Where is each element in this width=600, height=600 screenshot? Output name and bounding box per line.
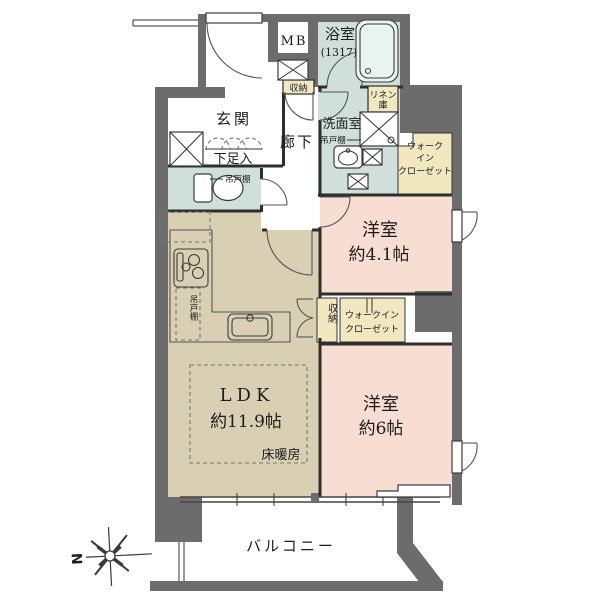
washer-pan-icon xyxy=(360,112,398,146)
bedroom1-window-arc xyxy=(462,212,477,240)
wall-window-mullion xyxy=(311,493,319,503)
room-size-bath: (1317) xyxy=(321,46,358,59)
wall-right-upper xyxy=(400,14,410,93)
compass-icon: N xyxy=(69,525,154,588)
toilet-tank xyxy=(194,174,212,202)
label-linen-2: 庫 xyxy=(378,99,387,111)
washbasin-icon xyxy=(334,146,362,168)
room-size-ldk: 約11.9帖 xyxy=(210,412,282,432)
shoe-cabinet-arc xyxy=(206,138,230,150)
wall-bath-left xyxy=(308,14,318,87)
label-kitchen-cupboard: 吊戸棚 xyxy=(188,295,198,321)
floor-plan-canvas: N MB 浴室 (1317) 玄関 下足入 廊下 収納 洗面室 吊戸棚 リネン … xyxy=(0,0,600,600)
shoe-cabinet-arc xyxy=(222,138,246,150)
balcony-wall-bottom xyxy=(150,581,443,591)
shoe-cabinet-arc xyxy=(238,138,262,150)
compass-ray xyxy=(86,554,152,557)
label-floor-heating: 床暖房 xyxy=(261,447,300,463)
bathtub-icon xyxy=(356,20,398,82)
bathtub-outer xyxy=(356,20,398,82)
balcony-partition xyxy=(179,542,184,581)
room-label-hallway: 廊下 xyxy=(280,133,314,151)
label-wic-mid-1: ウォークイン xyxy=(345,310,399,321)
label-wic-mid-2: クローゼット xyxy=(345,323,399,335)
compass-north-label: N xyxy=(70,552,87,565)
label-wic-right-1: ウォーク xyxy=(407,141,443,152)
room-label-mb: MB xyxy=(281,34,308,49)
label-wic-right-3: クローゼット xyxy=(398,165,452,177)
balcony-wall-right xyxy=(397,497,413,543)
compass-center xyxy=(105,551,116,562)
wall-pillar xyxy=(415,291,452,332)
label-washroom-cupboard: 吊戸棚 xyxy=(320,135,346,146)
railing-lines xyxy=(133,20,198,26)
wall xyxy=(155,87,168,497)
label-hall-storage: 収納 xyxy=(289,82,307,94)
room-size-bedroom1: 約4.1帖 xyxy=(348,245,409,265)
room-label-washroom: 洗面室 xyxy=(322,116,361,132)
room-label-balcony: バルコニー xyxy=(246,537,336,555)
label-toilet-cupboard: 吊戸棚 xyxy=(225,174,251,185)
room-label-ldk: LDK xyxy=(220,385,275,406)
bedroom2-window-arc xyxy=(462,443,477,471)
ldk-floor xyxy=(168,212,261,230)
hall-storage-door-arc xyxy=(285,92,313,120)
label-storage-mid: 収納 xyxy=(326,303,338,324)
entrance-door-leaf xyxy=(206,13,262,23)
label-wic-right-2: イン xyxy=(416,154,434,164)
bedroom2-window-gap xyxy=(452,441,462,473)
balcony-pillar xyxy=(155,497,202,542)
label-shoe-cabinet: 下足入 xyxy=(213,152,252,167)
bedroom1-window-gap xyxy=(452,210,462,242)
room-size-bedroom2: 約6帖 xyxy=(359,419,404,439)
room-label-bath: 浴室 xyxy=(325,25,355,43)
room-label-bedroom2: 洋室 xyxy=(363,394,399,415)
wall xyxy=(198,14,206,92)
label-linen-1: リネン xyxy=(369,90,396,101)
toilet-door-arc xyxy=(261,179,287,205)
room-label-entrance: 玄関 xyxy=(216,110,252,128)
entrance-door-arc xyxy=(207,23,262,78)
floor-plan: N MB 浴室 (1317) 玄関 下足入 廊下 収納 洗面室 吊戸棚 リネン … xyxy=(0,0,600,600)
room-label-bedroom1: 洋室 xyxy=(362,220,398,241)
